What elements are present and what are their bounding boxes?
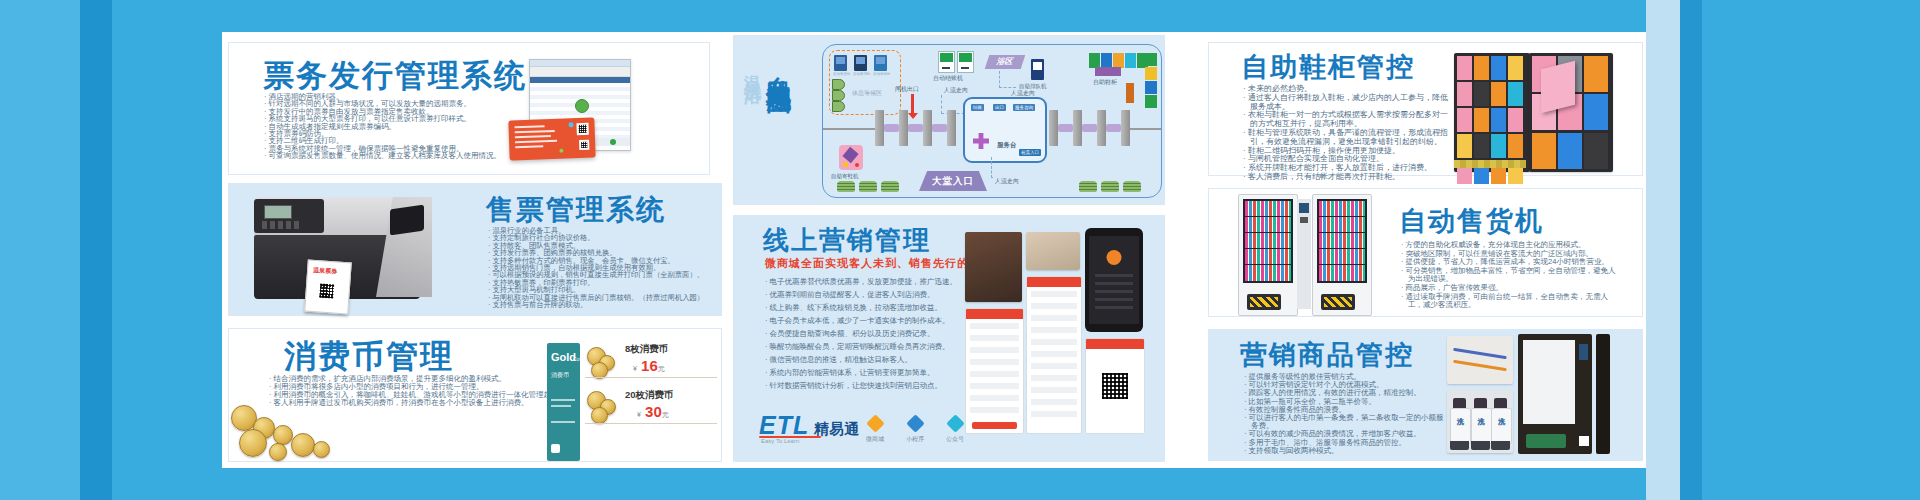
bullet-item: · 微信营销信息的推送，精准触达目标客人。	[765, 353, 961, 366]
bullet-list: · 方便的自助化权威设备，充分体现自主化的应用模式。· 突破地区限制，可以任意铺…	[1401, 241, 1616, 310]
shoe-deposit-label: 自助寄鞋机	[831, 173, 859, 180]
bath-area-banner: 浴区	[985, 55, 1026, 69]
app-button	[972, 422, 1017, 429]
coin-photo	[269, 443, 287, 461]
color-cell	[1125, 53, 1136, 68]
app-rows	[970, 323, 1019, 419]
color-cell	[1457, 134, 1472, 158]
checkout-machines-label: 自动结账机	[933, 74, 963, 83]
app-header	[966, 309, 1023, 319]
coin-photo	[273, 425, 293, 445]
ticket-qr	[319, 283, 334, 298]
bullet-item: · 针对数据营销统计分析，让您快速找到营销启动点。	[765, 379, 961, 392]
rest-area-box: 自动售货机 自动售币机 自动咖啡机 休息等候区	[829, 50, 901, 115]
color-cell	[1474, 134, 1489, 158]
app-logo-circle	[1107, 250, 1122, 265]
printer-window	[390, 205, 424, 236]
qr-code	[576, 123, 588, 135]
app-screenshot	[1026, 276, 1082, 434]
card-line	[551, 421, 575, 423]
logo-cn-name: 精易通	[814, 420, 859, 437]
turnstile-connector	[1082, 124, 1097, 132]
bullet-item: · 支持领取与回收两种模式。	[1244, 447, 1447, 455]
toothbrush-blue	[1453, 348, 1507, 359]
locker-row	[1089, 53, 1151, 68]
bullet-item: · 会员便捷自助查询余额、积分以及历史消费记录。	[765, 327, 961, 340]
flow-direction-label: 人流走向	[1011, 89, 1035, 98]
panel-goods-control: 营销商品管控 · 提供服务等级性的最佳营销方式。· 可以针对营销设定针对个人的优…	[1208, 329, 1643, 461]
app-rows	[1031, 291, 1077, 419]
frame-band-right-dark	[1680, 0, 1702, 500]
printed-ticket: 温泉票券	[304, 260, 352, 315]
card-line	[515, 125, 545, 128]
turnstile-pillar	[1073, 110, 1082, 146]
screen-lines	[1095, 274, 1133, 314]
turnstile-pillar	[1097, 110, 1106, 146]
service-chip: 服务咨询	[1013, 104, 1035, 111]
pickup-slot	[1526, 434, 1566, 448]
bullet-item: · 系统内部的智能营销体系，让营销变得更加简单。	[765, 366, 961, 379]
vending-machine-photo	[1312, 194, 1372, 316]
flow-path	[991, 157, 993, 178]
gate-exit-arrow	[911, 94, 914, 114]
frame-band-left-light	[0, 0, 80, 500]
pickup-slot	[1321, 294, 1355, 310]
lobby-entrance: 大堂入口	[919, 171, 987, 191]
card-line	[515, 130, 555, 133]
feature-label: 公众号	[935, 435, 975, 444]
card-line	[515, 145, 543, 148]
confetti-dot	[559, 149, 563, 153]
app-screenshot	[1085, 338, 1145, 434]
turnstile-pillar	[923, 110, 932, 146]
gate-exit-label: 闸机出口	[895, 85, 919, 94]
queue-machine-icon	[1031, 59, 1044, 80]
qr-code	[579, 140, 589, 150]
turnstile-pillar	[1121, 110, 1130, 146]
bullet-item: · 唤醒功能唤醒会员，定期营销唤醒沉睡会员再次消费。	[765, 340, 961, 353]
panel-shoe-cabinet: 自助鞋柜管控 · 未来的必然趋势。· 通过客人自行将鞋放入鞋柜，减少店内的人工参…	[1208, 42, 1643, 176]
frame-band-right-light	[1646, 0, 1680, 500]
turnstile-connector	[908, 124, 923, 132]
feature-item: 小程序	[895, 417, 935, 444]
color-cell	[1474, 108, 1489, 132]
coin-price: 30	[645, 403, 662, 420]
app-header	[1086, 339, 1144, 349]
color-cell	[1584, 94, 1608, 130]
printer-buttons	[262, 221, 302, 229]
seat-icon	[832, 101, 845, 112]
flow-chart: 自动售货机 自动售币机 自动咖啡机 休息等候区 自动结账机 人流走向 闸机出口 …	[822, 44, 1162, 198]
service-desk-label: 服务台	[997, 141, 1017, 150]
card-line	[515, 135, 551, 138]
color-cell	[1457, 56, 1472, 80]
color-cell	[1474, 82, 1489, 106]
service-desk-box: 结账 出口 服务咨询 服务台 检票入口	[963, 97, 1047, 163]
bench-row	[837, 181, 899, 192]
coffee-machine-icon	[874, 55, 887, 71]
color-cell	[1508, 108, 1523, 132]
turnstile-pillar	[1049, 110, 1058, 146]
unit: 元	[662, 411, 669, 418]
bottle: 水洗	[1491, 398, 1510, 450]
color-cell	[1101, 53, 1112, 68]
ticket-entry-chip: 检票入口	[1019, 149, 1041, 156]
bullet-list: · 酒店远期的营销利器。· 针对远期不同的人群与市场状况，可以发放大量的远期票务…	[264, 93, 530, 160]
bullet-item: · 鞋柜与管理系统联动，具备严谨的流程管理，形成流程指引，有效避免流程漏洞，避免…	[1243, 129, 1450, 147]
coin-photo	[591, 407, 608, 424]
diamond-icon	[866, 414, 884, 432]
corridor-line	[823, 128, 875, 130]
panel-ticket-issuing: 票务发行管理系统 · 酒店远期的营销利器。· 针对远期不同的人群与市场状况，可以…	[228, 42, 710, 175]
app-qr-code	[1102, 373, 1128, 399]
bullet-list: · 电子优惠券替代纸质优惠券，发放更加便捷，推广迅速。· 优惠券到期前自动提醒客…	[765, 275, 961, 392]
bullet-list: · 未来的必然趋势。· 通过客人自行将鞋放入鞋柜，减少店内的人工参与，降低服务成…	[1243, 85, 1450, 182]
feature-label: 微商城	[855, 435, 895, 444]
app-screenshot	[965, 308, 1024, 434]
etl-logo: ETL精易通 Easy To Learn	[759, 411, 859, 440]
locker-side	[1126, 83, 1134, 103]
turnstile-connector	[1106, 124, 1121, 132]
coin-machine-icon	[854, 55, 867, 71]
color-cell	[1145, 67, 1157, 80]
currency: ¥	[637, 411, 641, 418]
frame-band-left-dark	[80, 0, 112, 500]
bullet-list: · 温泉行业的必备工具。· 支持定制旅行社合约协议价格。· 支持散客、团队售票模…	[488, 227, 722, 308]
color-cell	[1584, 56, 1608, 92]
card-subtitle: 消费币	[551, 371, 569, 380]
color-cell	[1474, 56, 1489, 80]
service-chip: 结账	[971, 104, 984, 111]
diagram-title: 自助化流程图	[763, 56, 796, 74]
card-logo	[551, 444, 560, 453]
locker-column	[1145, 53, 1158, 111]
bullet-item: · 可以进行客人的毛巾第一条免费，第二条收取一定的小额服务费。	[1244, 414, 1447, 430]
color-cell	[1457, 82, 1472, 106]
color-cell	[1491, 82, 1506, 106]
window-titlebar	[530, 60, 630, 67]
coin-price: 16	[641, 357, 658, 374]
rest-area-label: 休息等候区	[852, 89, 882, 98]
app-header	[1027, 277, 1081, 287]
confetti-dot	[568, 122, 573, 127]
color-cell	[1491, 134, 1506, 158]
panel-title: 自动售货机	[1399, 203, 1544, 239]
logo-tagline: Easy To Learn	[761, 438, 799, 444]
bath-photo	[1026, 232, 1080, 270]
turnstile-pillar	[899, 110, 908, 146]
label-printer-photo: 温泉票券	[250, 191, 432, 313]
payment-column	[1297, 199, 1311, 309]
bullet-item: · 客人利用手牌通过发币机购买消费币，持消费币在各个小型设备上进行消费。	[269, 399, 569, 407]
bullet-list: · 提供服务等级性的最佳营销方式。· 可以针对营销设定针对个人的优惠模式。· 跟…	[1244, 373, 1447, 455]
coin-qty: 8枚消费币	[625, 343, 668, 356]
color-cell	[1457, 108, 1472, 132]
coin-photo	[239, 429, 267, 457]
color-cell	[1113, 53, 1124, 68]
service-chip: 出口	[993, 104, 1006, 111]
logo-text: ETL	[759, 411, 809, 439]
color-cell	[1508, 134, 1523, 158]
coin-photo	[313, 441, 330, 458]
panel-title: 票务发行管理系统	[263, 55, 527, 97]
feature-item: 微商城	[855, 417, 895, 444]
shoe-deposit-icon	[839, 145, 863, 170]
vending-machine-photo	[1238, 194, 1298, 316]
card-brand-suffix: Coins	[573, 356, 586, 362]
ticket-text: 温泉票券	[313, 266, 338, 277]
wash-bottles-photo: 水洗 水洗 水洗	[1447, 390, 1513, 453]
card-line	[551, 405, 571, 407]
locker-desk	[1095, 67, 1121, 76]
diagram-subtitle: 温泉洗浴	[741, 61, 764, 77]
checkout-machine-icon	[938, 51, 955, 73]
qr-code	[1579, 436, 1589, 446]
panel-title: 营销商品管控	[1240, 337, 1414, 373]
currency: ¥	[633, 365, 637, 372]
bullet-item: · 可查询票据发售票数量、使用情况、建立客人档案库及客人使用情况。	[264, 152, 530, 159]
panel-title: 售票管理系统	[486, 191, 666, 229]
coin-photo	[291, 433, 315, 457]
checkout-machine-icon	[957, 51, 974, 73]
color-cell	[1508, 82, 1523, 106]
corridor-line	[1130, 128, 1161, 130]
turnstile-pillar	[875, 110, 884, 146]
divider	[585, 423, 717, 424]
bullet-item: · 支持售票与前台开牌的联动。	[488, 301, 722, 308]
turnstile-connector	[884, 124, 899, 132]
machine-label: 自动售货机	[833, 72, 851, 76]
direction-cross-icon	[973, 133, 989, 149]
spa-photo	[965, 232, 1022, 302]
bullet-list: · 结合消费的需求，扩充酒店内部消费场景，提升更多细化的盈利模式。· 利用消费币…	[269, 375, 569, 407]
globe-icon	[575, 99, 589, 113]
color-cell	[1145, 81, 1157, 94]
panel-vending: 自动售货机 · 方便的自助化权威设备，充分体现自主化的应用模式。· 突破地区限制…	[1208, 188, 1643, 317]
vending-machine-icon	[834, 55, 847, 71]
card-line	[515, 140, 557, 143]
bullet-item: · 线上购券、线下系统核销兑换，拉动客流增加收益。	[765, 301, 961, 314]
coin-qty: 20枚消费币	[625, 389, 674, 402]
panel-title: 自助鞋柜管控	[1241, 49, 1415, 85]
machine-screen	[1579, 344, 1588, 360]
bullet-item: · 通过读取手牌消费，可由前台统一结算，全自动售卖，无需人工，减少客流积压。	[1401, 293, 1616, 310]
turnstile-connector	[932, 124, 947, 132]
color-cell	[1491, 108, 1506, 132]
seat-icon	[832, 90, 845, 101]
locker-photo	[1454, 53, 1530, 172]
panel-coin-management: 消费币管理 · 结合消费的需求，扩充酒店内部消费场景，提升更多细化的盈利模式。·…	[228, 328, 722, 462]
toothbrush-orange	[1453, 360, 1507, 371]
bullet-item: · 通过客人自行将鞋放入鞋柜，减少店内的人工参与，降低服务成本。	[1243, 94, 1450, 112]
card-line	[551, 399, 575, 401]
diamond-icon	[946, 414, 964, 432]
feature-label: 小程序	[895, 435, 935, 444]
status-dot	[610, 139, 616, 145]
floor-strip	[1454, 160, 1526, 168]
color-cell	[1584, 133, 1608, 169]
adjacent-machine	[1596, 334, 1610, 454]
color-cell	[1145, 53, 1157, 66]
open-locker-door	[1541, 61, 1575, 113]
unit: 元	[658, 365, 665, 372]
bullet-item: · 客人消费后，只有结帐才能再次打开鞋柜。	[1243, 173, 1450, 182]
color-cell	[1145, 95, 1157, 108]
color-cell	[1508, 56, 1523, 80]
bullet-item: · 电子优惠券替代纸质优惠券，发放更加便捷，推广迅速。	[765, 275, 961, 288]
color-cell	[1089, 53, 1100, 68]
divider	[585, 377, 717, 378]
toolbar	[530, 67, 630, 77]
flow-direction-label: 人流走向	[995, 177, 1019, 186]
bullet-item: · 电子会员卡成本低，减少了一卡通实体卡的制作成本。	[765, 314, 961, 327]
diamond-icon	[906, 414, 924, 432]
pickup-slot	[1247, 294, 1281, 310]
bottle: 水洗	[1450, 398, 1469, 450]
poster: { "frame": { "blue": "#38abdf", "accent_…	[0, 0, 1920, 500]
color-cell	[1532, 133, 1556, 169]
color-cell	[1491, 56, 1506, 80]
bullet-item: · 衣柜与鞋柜一对一的方式或根据客人需求按需分配多对一的方式相互并行，提高利用率…	[1243, 111, 1450, 129]
bottle: 水洗	[1471, 398, 1490, 450]
panel-title: 消费币管理	[284, 335, 454, 379]
goods-vending-photo	[1518, 334, 1592, 454]
turnstile-pillar	[947, 110, 956, 146]
turnstile-connector	[1058, 124, 1073, 132]
seat-icon	[832, 79, 845, 90]
machine-label: 自动售币机	[853, 72, 871, 76]
flow-path	[999, 71, 1016, 88]
printer-screen	[264, 205, 292, 219]
toothbrush-kit-photo	[1447, 336, 1513, 384]
panel-flow-diagram: 温泉洗浴 自助化流程图 自动售货机 自动售币机 自动咖啡机 休息等候区 自动结账…	[733, 35, 1165, 205]
panel-ticket-sales: 温泉票券 售票管理系统 · 温泉行业的必备工具。· 支持定制旅行社合约协议价格。…	[228, 183, 722, 316]
phone-photo	[1085, 228, 1143, 332]
panel-online-marketing: 线上营销管理 微商城全面实现客人未到、销售先行的理念 · 电子优惠券替代纸质优惠…	[733, 215, 1165, 462]
bullet-item: · 可分类销售，增加物品丰富性，节省空间，全自动管理，避免人为出现错误。	[1401, 267, 1616, 284]
panel-subtitle: 微商城全面实现客人未到、销售先行的理念	[765, 256, 993, 271]
flow-direction-label: 人流走向	[944, 86, 968, 95]
gold-coin-card: Gold Coins 消费币	[547, 343, 580, 461]
bench-row	[1079, 181, 1141, 192]
shoe-lockers-label: 自助鞋柜	[1093, 78, 1117, 87]
panel-title: 线上营销管理	[763, 223, 931, 258]
ticket-card-photo	[508, 118, 595, 161]
color-cell	[1558, 133, 1582, 169]
machine-label: 自动咖啡机	[873, 72, 891, 76]
bullet-item: · 优惠券到期前自动提醒客人，促进客人到店消费。	[765, 288, 961, 301]
